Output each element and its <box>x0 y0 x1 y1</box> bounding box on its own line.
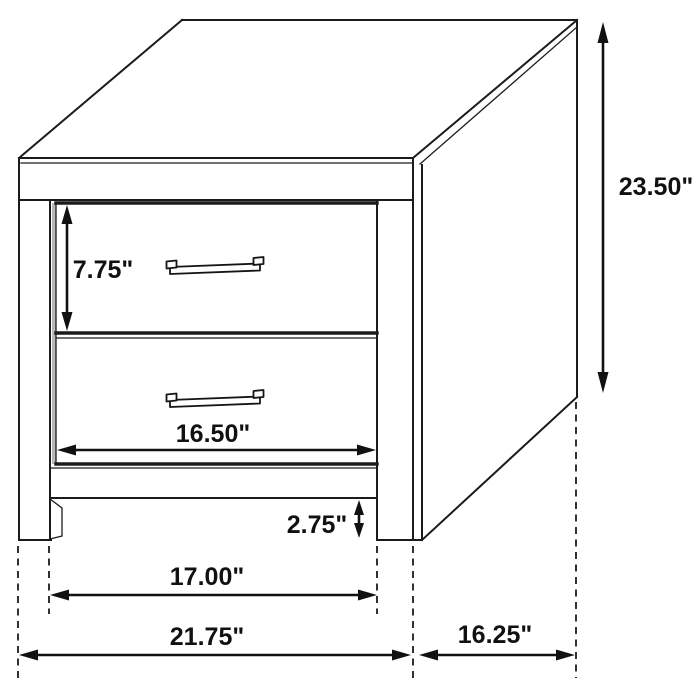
drawer-width-label: 16.50" <box>176 420 250 448</box>
dim-overall-width: 21.75" <box>19 623 411 661</box>
inner-leg-width-label: 17.00" <box>170 563 244 591</box>
face-frame <box>19 158 422 540</box>
top-panel <box>19 20 577 200</box>
dimension-annotations: 23.50" 7.75" 16.50" 2.75" <box>18 22 693 678</box>
dimension-diagram: 23.50" 7.75" 16.50" 2.75" <box>0 0 700 700</box>
drawers <box>50 203 377 498</box>
dim-drawer-width: 16.50" <box>57 420 376 456</box>
overall-height-label: 23.50" <box>619 173 693 201</box>
dim-drawer-front-height: 7.75" <box>62 205 134 331</box>
left-leg-inner-face <box>50 499 62 539</box>
dim-inner-leg-width: 17.00" <box>50 563 377 601</box>
base-clearance-label: 2.75" <box>287 511 348 539</box>
drawer-front-height-label: 7.75" <box>73 256 134 284</box>
dim-overall-depth: 16.25" <box>419 621 575 661</box>
diagram-canvas: 23.50" 7.75" 16.50" 2.75" <box>0 0 700 700</box>
dim-base-clearance: 2.75" <box>287 500 364 539</box>
overall-depth-label: 16.25" <box>458 621 532 649</box>
dim-overall-height: 23.50" <box>598 22 694 393</box>
overall-width-label: 21.75" <box>170 623 244 651</box>
drawer-2-handle <box>167 390 264 407</box>
drawer-1-handle <box>167 257 264 274</box>
